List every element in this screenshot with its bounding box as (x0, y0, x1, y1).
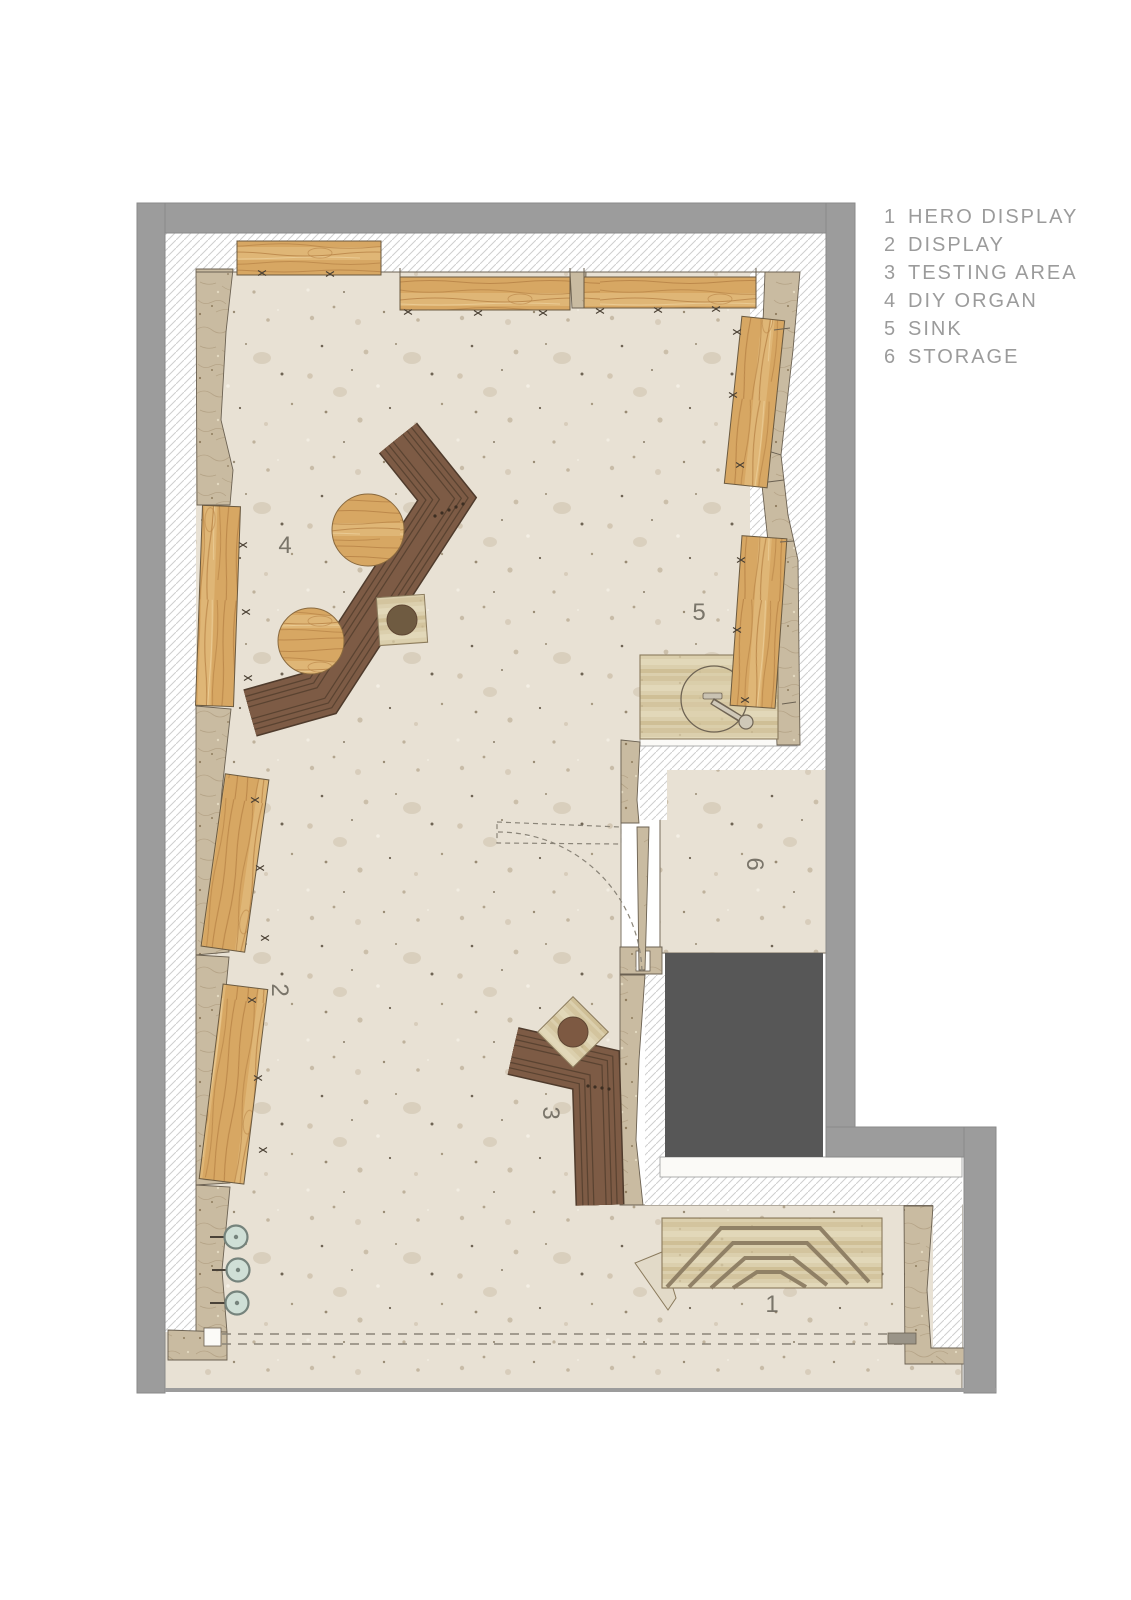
hatch-storage-top (640, 745, 827, 770)
legend-item-sink: 5SINK (884, 315, 1078, 343)
round-table-2 (278, 608, 344, 674)
legend: 1HERO DISPLAY 2DISPLAY 3TESTING AREA 4DI… (884, 203, 1078, 371)
outer-wall-top (137, 203, 855, 233)
legend-item-number: 3 (884, 259, 900, 287)
legend-item-label: STORAGE (908, 346, 1019, 368)
display-shelf-top-1 (400, 277, 570, 310)
hatch-left (164, 233, 196, 1332)
legend-item-number: 6 (884, 343, 900, 371)
storefront-base-line (165, 1388, 996, 1392)
legend-item-label: TESTING AREA (908, 262, 1078, 284)
hatch-storage-left (640, 745, 667, 820)
legend-item-label: HERO DISPLAY (908, 206, 1078, 228)
floor-plan-page: 1 2 3 4 5 6 1HERO DISPLAY 2DISPLAY 3TEST… (0, 0, 1131, 1600)
storefront-end-bar (888, 1333, 916, 1344)
outer-wall-right-lower (964, 1127, 996, 1393)
band-below-void (660, 1157, 962, 1177)
faucet-knob (739, 715, 753, 729)
display-shelf-top-2 (584, 277, 756, 308)
display-shelf-niche (237, 241, 381, 275)
plan-label-2: 2 (266, 983, 293, 996)
legend-item-label: DISPLAY (908, 234, 1005, 256)
plan-label-6: 6 (741, 857, 768, 870)
wall-notch-bottom-left (204, 1328, 221, 1346)
display-shelf-left-1 (196, 505, 241, 706)
plan-label-4: 4 (278, 532, 291, 559)
outer-wall-right-upper (826, 203, 855, 1157)
legend-item-storage: 6STORAGE (884, 343, 1078, 371)
legend-item-diy-organ: 4DIY ORGAN (884, 287, 1078, 315)
hatch-bottom-right (933, 1157, 962, 1355)
void-block (665, 953, 823, 1157)
plan-label-3: 3 (537, 1106, 564, 1119)
legend-item-number: 4 (884, 287, 900, 315)
legend-item-display: 2DISPLAY (884, 231, 1078, 259)
legend-item-number: 2 (884, 231, 900, 259)
legend-item-hero-display: 1HERO DISPLAY (884, 203, 1078, 231)
outer-wall-left (137, 203, 165, 1393)
wall-partition-upper (621, 740, 640, 823)
hatch-below-void (645, 1177, 962, 1205)
round-table-1 (332, 494, 404, 566)
legend-item-label: DIY ORGAN (908, 290, 1038, 312)
legend-item-label: SINK (908, 318, 963, 340)
plan-label-5: 5 (692, 599, 705, 626)
plan-label-1: 1 (765, 1291, 778, 1318)
faucet-bar (703, 693, 722, 699)
legend-item-testing-area: 3TESTING AREA (884, 259, 1078, 287)
wall-partition-lower (620, 975, 645, 1205)
legend-item-number: 5 (884, 315, 900, 343)
organ-stone-stool (376, 594, 427, 645)
legend-item-number: 1 (884, 203, 900, 231)
